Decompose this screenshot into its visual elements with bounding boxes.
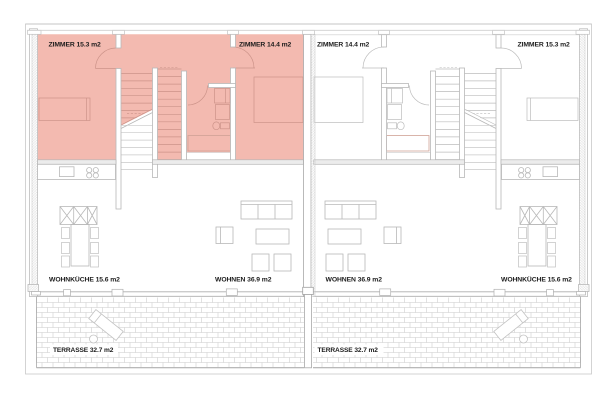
- svg-text:WOHNKÜCHE 15.6 m2: WOHNKÜCHE 15.6 m2: [501, 275, 572, 284]
- svg-text:ZIMMER 15.3 m2: ZIMMER 15.3 m2: [518, 42, 571, 49]
- svg-text:TERRASSE 32.7 m2: TERRASSE 32.7 m2: [53, 347, 114, 354]
- svg-text:ZIMMER 15.3 m2: ZIMMER 15.3 m2: [49, 42, 102, 49]
- svg-text:ZIMMER 14.4 m2: ZIMMER 14.4 m2: [317, 42, 370, 49]
- svg-text:WOHNEN 36.9 m2: WOHNEN 36.9 m2: [326, 277, 383, 284]
- svg-text:WOHNEN 36.9 m2: WOHNEN 36.9 m2: [215, 277, 272, 284]
- svg-text:TERRASSE 32.7 m2: TERRASSE 32.7 m2: [318, 347, 379, 354]
- svg-text:WOHNKÜCHE 15.6 m2: WOHNKÜCHE 15.6 m2: [49, 275, 120, 284]
- svg-text:ZIMMER 14.4 m2: ZIMMER 14.4 m2: [239, 42, 292, 49]
